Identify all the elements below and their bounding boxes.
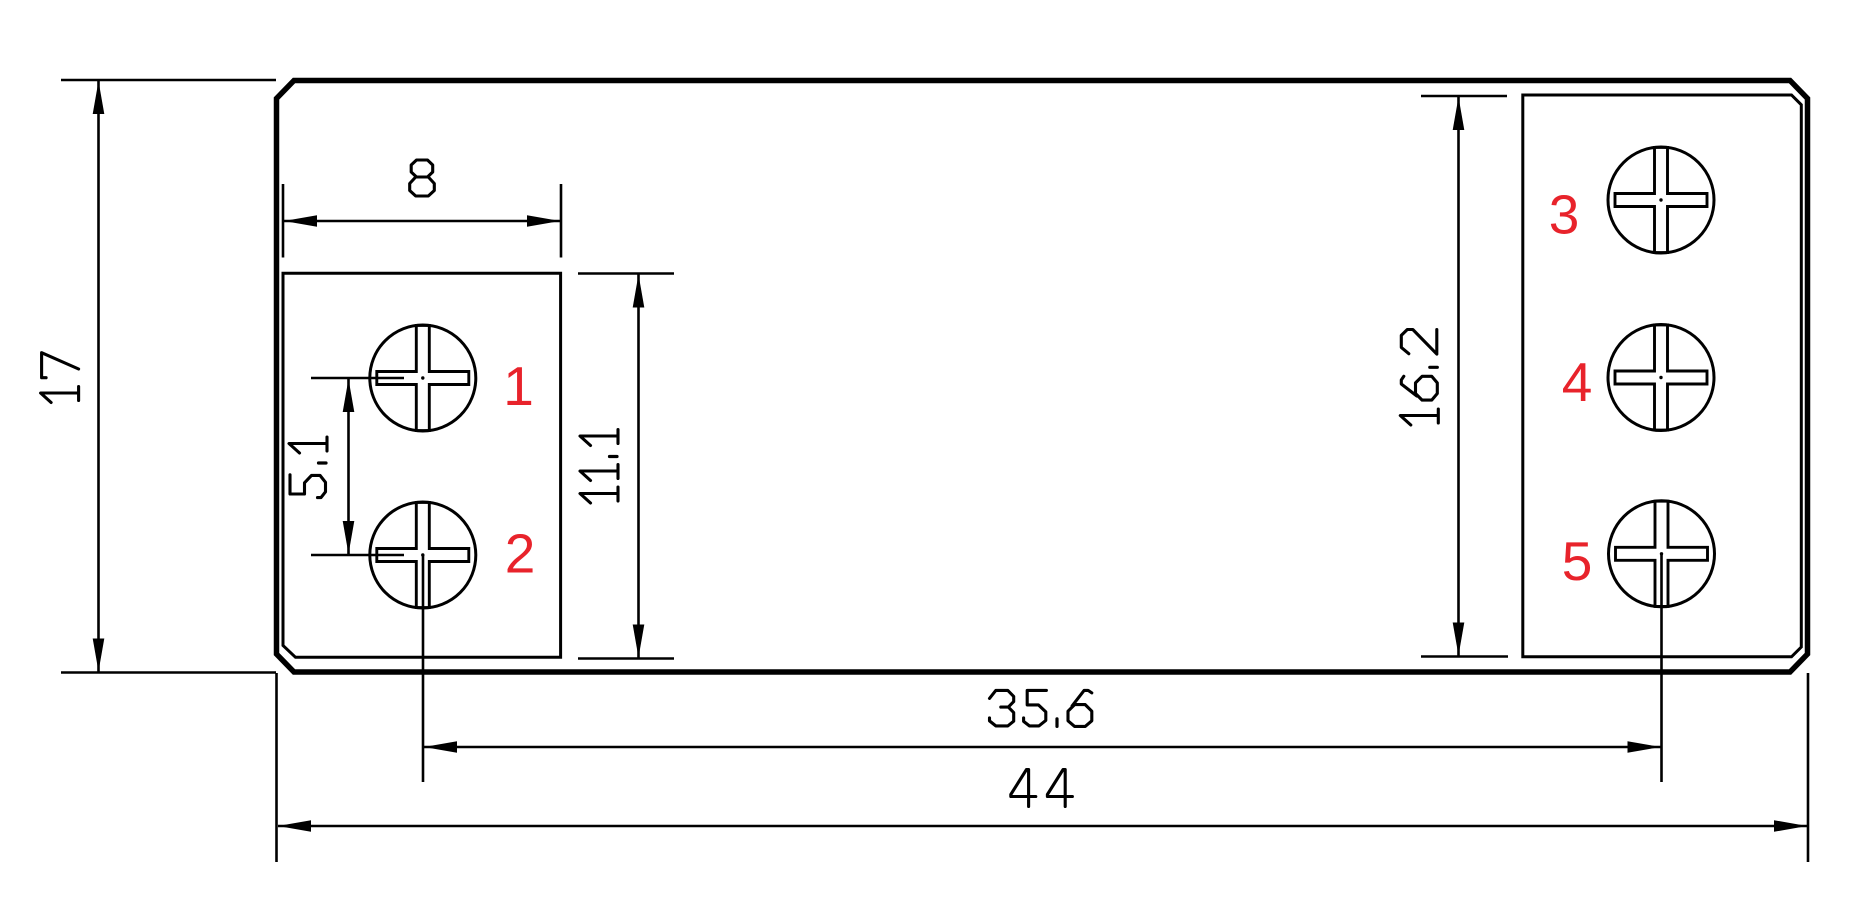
svg-text:3: 3 <box>1549 184 1580 246</box>
svg-text:2: 2 <box>505 523 536 585</box>
svg-text:1: 1 <box>503 355 534 417</box>
svg-text:5: 5 <box>1562 530 1593 592</box>
svg-text:4: 4 <box>1562 351 1593 413</box>
